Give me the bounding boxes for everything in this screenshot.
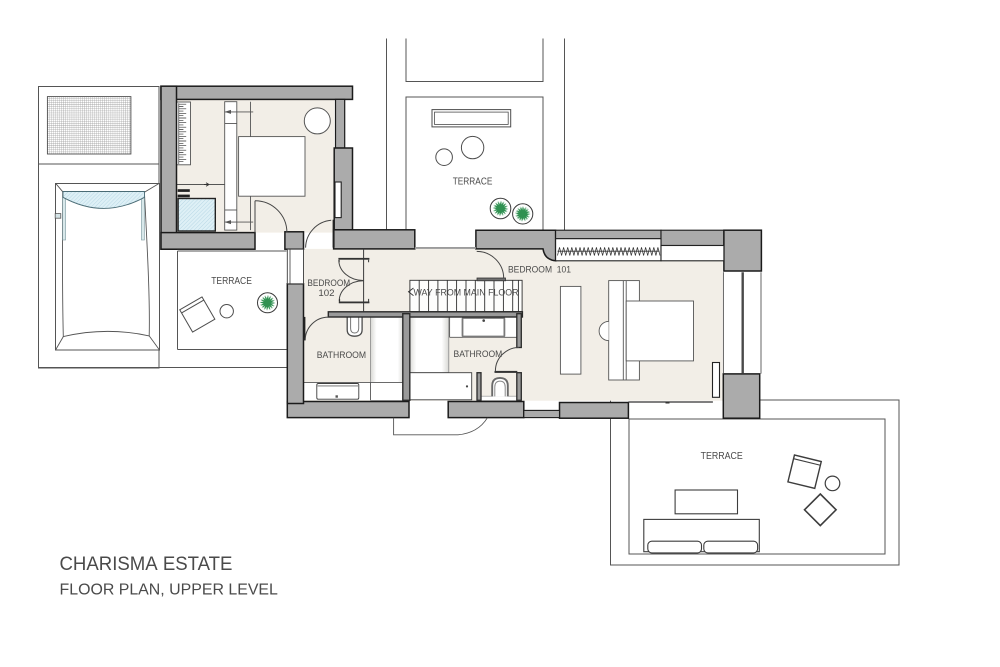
svg-text:TERRACE: TERRACE: [701, 450, 743, 462]
svg-text:BATHROOM: BATHROOM: [454, 349, 503, 360]
svg-text:FLOOR PLAN, UPPER LEVEL: FLOOR PLAN, UPPER LEVEL: [60, 582, 279, 599]
svg-text:BATHROOM: BATHROOM: [317, 350, 366, 361]
svg-text:102: 102: [318, 288, 334, 299]
svg-text:TERRACE: TERRACE: [211, 275, 252, 287]
svg-text:TERRACE: TERRACE: [453, 176, 493, 187]
svg-text:WAY FROM MAIN FLOOR: WAY FROM MAIN FLOOR: [414, 287, 519, 298]
svg-text:BEDROOM 101: BEDROOM 101: [508, 265, 571, 276]
svg-text:CHARISMA ESTATE: CHARISMA ESTATE: [60, 553, 233, 575]
